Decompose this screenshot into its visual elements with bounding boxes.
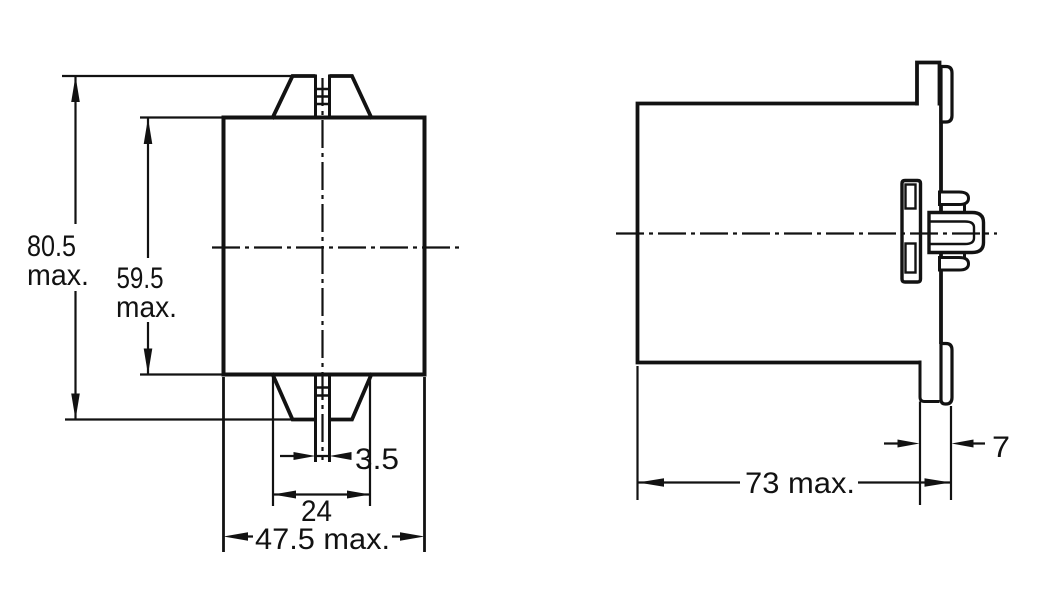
arrow-right-icon [400,532,425,540]
panel-clip-lower-slot [906,244,916,273]
arrow-right-icon [294,452,316,460]
lower-terminal-prong [940,258,969,271]
dim-depth: 73 max. [638,467,951,500]
arrow-left-icon [638,478,664,486]
dim-screw-slot-width: 3.5 [280,443,399,476]
upper-terminal-prong [940,192,969,205]
bottom-hook-flange [941,344,952,405]
bottom-mounting-hook [920,344,952,405]
panel-clip-upper-slot [906,185,916,209]
arrow-up-icon [71,76,80,102]
top-hook-flange [941,67,952,123]
dim-total-height: 80.5 max. [27,76,89,420]
arrow-down-icon [71,394,80,420]
dim-label-case-height-note: max. [116,291,177,324]
arrow-right-icon [898,440,920,448]
arrow-left-icon [952,440,974,448]
bottom-pocket [920,361,940,402]
front-case-outline [224,118,425,375]
technical-drawing: 80.5 max. 59.5 max. 3.5 24 [0,0,1051,597]
side-view: 73 max. 7 [616,63,1010,506]
dimension-drawing-page: 80.5 max. 59.5 max. 3.5 24 [0,0,1051,597]
front-view: 80.5 max. 59.5 max. 3.5 24 [27,75,463,557]
arrow-down-icon [144,349,153,375]
dim-case-height: 59.5 max. [116,118,177,375]
top-mounting-hook [917,63,952,123]
arrow-left-icon [330,452,352,460]
dim-flange-depth: 7 [884,431,1010,464]
arrow-up-icon [144,118,153,144]
arrow-left-icon [224,532,249,540]
dim-label-case-width: 47.5 max. [255,523,390,556]
dim-label-flange-depth: 7 [992,431,1010,464]
arrow-left-icon [273,491,296,499]
rear-terminals [929,192,984,270]
dim-label-depth: 73 max. [745,467,855,500]
arrow-right-icon [347,491,370,499]
panel-clip [902,181,921,283]
arrow-right-icon [925,478,951,486]
dim-label-screw-slot-width: 3.5 [355,443,399,476]
dim-case-width: 47.5 max. [224,523,425,556]
dim-label-total-height-note: max. [27,259,89,292]
